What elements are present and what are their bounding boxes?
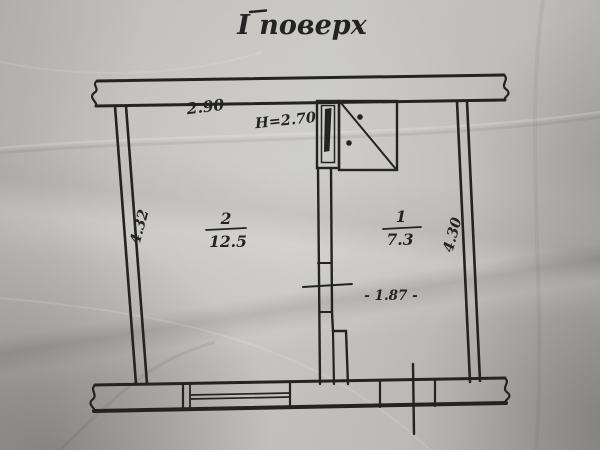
scanned-floor-plan-page: І поверх xyxy=(0,0,600,450)
floor-plan-drawing: І поверх xyxy=(0,0,600,450)
paper-grain-overlay xyxy=(0,0,600,450)
